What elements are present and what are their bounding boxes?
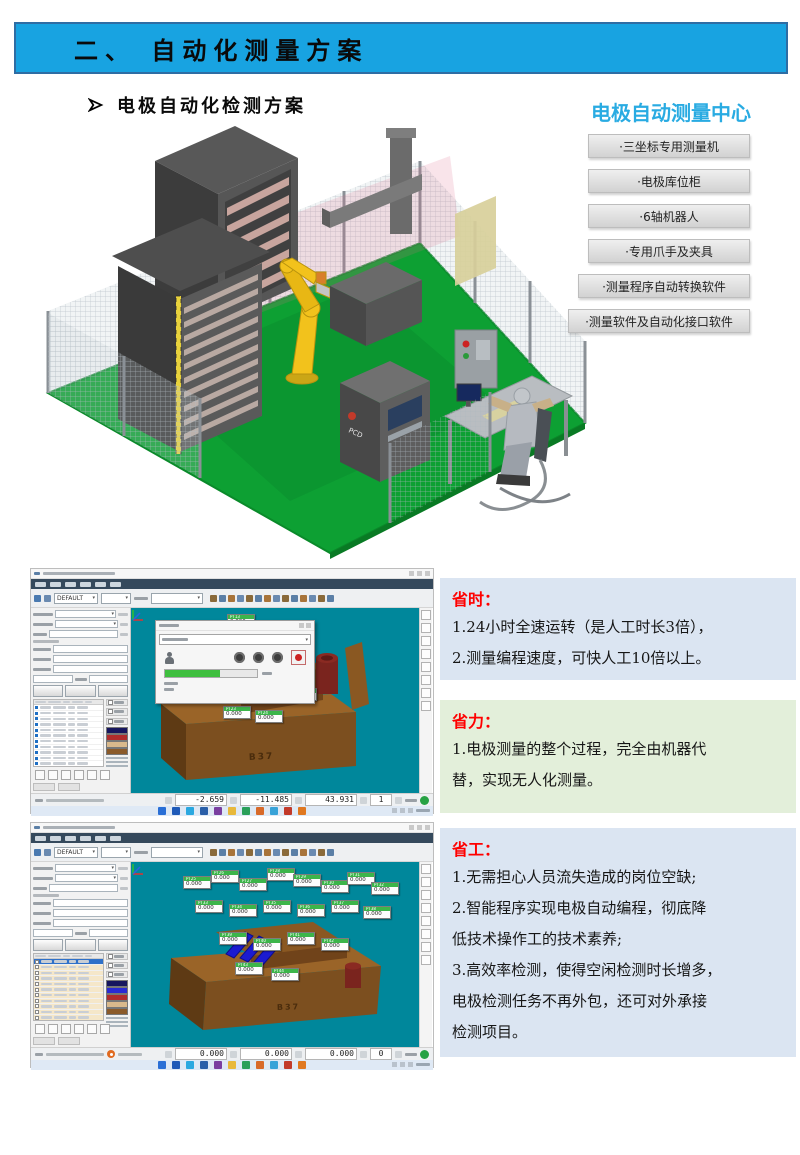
toolbar-icon[interactable]: [309, 595, 316, 602]
benefit-block-labor: 省力： 1.电极测量的整个过程，完全由机器代 替，实现无人化测量。: [440, 700, 796, 813]
toolbar-icon[interactable]: [291, 595, 298, 602]
dialog-program-select[interactable]: ▾: [159, 634, 311, 645]
window-controls[interactable]: [409, 571, 430, 576]
taskbar-app-icon[interactable]: [284, 807, 292, 815]
taskbar-app-icon[interactable]: [172, 807, 180, 815]
toolbar-icon[interactable]: [219, 595, 226, 602]
param-field[interactable]: [53, 655, 128, 663]
param-field[interactable]: [53, 899, 128, 907]
toolbar-icon[interactable]: [219, 849, 226, 856]
toolbar-icon[interactable]: [300, 849, 307, 856]
probe-icon: [360, 797, 367, 804]
panel-icon[interactable]: [100, 1024, 110, 1034]
toolbar-icon[interactable]: [318, 595, 325, 602]
menu-item[interactable]: [50, 836, 61, 841]
param-field[interactable]: [53, 665, 128, 673]
toolbar-icon[interactable]: [309, 849, 316, 856]
operator-icon: [164, 652, 174, 664]
search-field[interactable]: [33, 929, 73, 937]
toolbar-icon[interactable]: [273, 849, 280, 856]
taskbar-app-icon[interactable]: [200, 807, 208, 815]
point-label: PT380.000: [363, 906, 391, 919]
taskbar-app-icon[interactable]: [228, 1061, 236, 1069]
taskbar-app-icon[interactable]: [284, 1061, 292, 1069]
y-coordinate: 0.000: [240, 1048, 292, 1060]
system-tray: [392, 808, 430, 813]
3d-viewport[interactable]: B37 PT130.000PT140.000PT150.000PT160.000…: [131, 608, 419, 793]
point-label: PT250.000: [183, 876, 211, 889]
dialog-close-icon[interactable]: [306, 623, 311, 628]
mc-item-rack[interactable]: ·电极库位柜: [588, 169, 750, 193]
menu-item[interactable]: [80, 836, 91, 841]
legend-swatch: [106, 980, 128, 987]
panel-icon[interactable]: [61, 1024, 71, 1034]
menu-item[interactable]: [95, 836, 106, 841]
automation-cell-illustration: PCD: [30, 116, 590, 560]
axis-z-icon: [295, 797, 302, 804]
legend-swatch: [106, 741, 128, 748]
axis-triad-icon: [131, 862, 145, 876]
benefit-heading: 省工：: [452, 836, 784, 860]
alarm-bell-icon: [420, 796, 429, 805]
workspace-select[interactable]: ▾: [55, 610, 116, 618]
toolbar-icon[interactable]: [318, 849, 325, 856]
menu-item[interactable]: [110, 836, 121, 841]
panel-button[interactable]: [98, 685, 128, 697]
point-label: PT410.000: [287, 932, 315, 945]
point-label: PT440.000: [271, 968, 299, 981]
y-coordinate: -11.485: [240, 794, 292, 806]
option-toggle[interactable]: [106, 718, 128, 725]
tolerance-field[interactable]: [106, 761, 128, 763]
part-select[interactable]: ▾: [151, 593, 203, 604]
status-bar: -2.659 -11.485 43.931 1: [31, 793, 433, 806]
panel-icon[interactable]: [35, 770, 45, 780]
tolerance-field[interactable]: [106, 757, 128, 759]
menu-item[interactable]: [35, 836, 46, 841]
window-titlebar: [31, 823, 433, 833]
benefit-line: 替，实现无人化测量。: [452, 765, 784, 796]
record-button[interactable]: [291, 650, 306, 665]
legend-swatch: [106, 727, 128, 734]
view-tool-icon[interactable]: [421, 929, 431, 939]
cmm-software-screenshot-1: DEFAULT▾ ▾ ▾ ▾ ▾: [30, 568, 434, 814]
point-label: PT240.000: [255, 710, 283, 723]
panel-icon[interactable]: [35, 1024, 45, 1034]
legend-swatch: [106, 994, 128, 1001]
view-tool-icon[interactable]: [421, 942, 431, 952]
param-field[interactable]: [53, 909, 128, 917]
toolbar-icon[interactable]: [228, 595, 235, 602]
windows-taskbar: [31, 806, 433, 816]
section-heading: 电极自动化检测方案: [117, 92, 306, 118]
panel-tab[interactable]: [58, 783, 80, 791]
panel-icon[interactable]: [87, 1024, 97, 1034]
mc-item-gripper[interactable]: ·专用爪手及夹具: [588, 239, 750, 263]
panel-tab[interactable]: [33, 1037, 55, 1045]
point-label: PT420.000: [321, 938, 349, 951]
view-tool-icon[interactable]: [421, 610, 431, 620]
option-toggle[interactable]: [106, 699, 128, 706]
legend-swatch: [106, 1008, 128, 1015]
probe-select[interactable]: DEFAULT▾: [54, 847, 98, 858]
toolbar-icon[interactable]: [282, 849, 289, 856]
point-label: PT230.000: [223, 706, 251, 719]
taskbar-app-icon[interactable]: [228, 807, 236, 815]
display-options-column: [106, 953, 128, 1021]
point-label: PT300.000: [321, 880, 349, 893]
measure-run-dialog: ▾: [155, 620, 315, 704]
x-coordinate: -2.659: [175, 794, 227, 806]
toolbar-icon[interactable]: [237, 849, 244, 856]
menu-item[interactable]: [95, 582, 106, 587]
estop-button: [348, 412, 356, 420]
taskbar-app-icon[interactable]: [298, 1061, 306, 1069]
system-tray: [392, 1062, 430, 1067]
benefit-line: 1.无需担心人员流失造成的岗位空缺;: [452, 862, 784, 893]
fixture-select[interactable]: ▾: [55, 874, 118, 882]
pause-button[interactable]: [253, 652, 264, 663]
benefit-block-time: 省时： 1.24小时全速运转（是人工时长3倍）， 2.测量编程速度，可快人工10…: [440, 578, 796, 680]
toolbar-icon[interactable]: [264, 849, 271, 856]
benefit-heading: 省力：: [452, 708, 784, 732]
toolbar-icon[interactable]: [210, 849, 217, 856]
taskbar-app-icon[interactable]: [242, 807, 250, 815]
z-coordinate: 0.000: [305, 1048, 357, 1060]
panel-icon[interactable]: [74, 1024, 84, 1034]
axis-triad-icon: [131, 608, 145, 622]
status-bar: 0.000 0.000 0.000 0: [31, 1047, 433, 1060]
run-button[interactable]: [234, 652, 245, 663]
view-tool-strip: [419, 862, 432, 1047]
panel-icon[interactable]: [48, 770, 58, 780]
benefit-block-staff: 省工： 1.无需担心人员流失造成的岗位空缺; 2.智能程序实现电极自动编程，彻底…: [440, 828, 796, 1057]
panel-icon[interactable]: [74, 770, 84, 780]
notification-icon[interactable]: [107, 1050, 115, 1058]
stop-button[interactable]: [272, 652, 283, 663]
filter-field[interactable]: [89, 929, 129, 937]
panel-icon[interactable]: [61, 770, 71, 780]
probe-select[interactable]: DEFAULT▾: [54, 593, 98, 604]
taskbar-app-icon[interactable]: [242, 1061, 250, 1069]
toolbar-icon[interactable]: [255, 849, 262, 856]
measurement-center-title: 电极自动测量中心: [583, 97, 759, 126]
axis-x-icon: [165, 797, 172, 804]
point-count: 0: [370, 1048, 392, 1060]
toolbar-icon[interactable]: [264, 595, 271, 602]
view-tool-icon[interactable]: [421, 916, 431, 926]
arrow-bullet-icon: [88, 97, 104, 113]
point-label: PT320.000: [371, 882, 399, 895]
view-tool-icon[interactable]: [421, 877, 431, 887]
taskbar-app-icon[interactable]: [256, 1061, 264, 1069]
view-tool-icon[interactable]: [421, 864, 431, 874]
legend-swatch: [106, 734, 128, 741]
benefit-line: 1.24小时全速运转（是人工时长3倍），: [452, 612, 784, 643]
progress-bar: [164, 669, 258, 678]
toolbar: DEFAULT▾ ▾ ▾: [31, 843, 433, 862]
mc-item-interface-software[interactable]: ·测量软件及自动化接口软件: [568, 309, 750, 333]
view-tool-icon[interactable]: [421, 890, 431, 900]
panel-tab[interactable]: [33, 783, 55, 791]
benefit-line: 检测项目。: [452, 1017, 784, 1048]
point-label: PT260.000: [211, 870, 239, 883]
option-toggle[interactable]: [106, 971, 128, 978]
toolbar-icon[interactable]: [34, 595, 41, 602]
view-tool-icon[interactable]: [421, 688, 431, 698]
toolbar-icon[interactable]: [228, 849, 235, 856]
taskbar-app-icon[interactable]: [186, 807, 194, 815]
toolbar: DEFAULT▾ ▾ ▾: [31, 589, 433, 608]
taskbar-app-icon[interactable]: [158, 807, 166, 815]
windows-taskbar: [31, 1060, 433, 1070]
point-label: PT360.000: [297, 904, 325, 917]
toolbar-icon[interactable]: [44, 849, 51, 856]
cmm-software-screenshot-2: DEFAULT▾ ▾ ▾ ▾ ▾: [30, 822, 434, 1068]
table-row[interactable]: [34, 1015, 103, 1021]
toolbar-icon[interactable]: [255, 595, 262, 602]
axis-y-icon: [230, 797, 237, 804]
view-tool-icon[interactable]: [421, 623, 431, 633]
point-label: PT350.000: [263, 900, 291, 913]
panel-icon[interactable]: [87, 770, 97, 780]
panel-button[interactable]: [98, 939, 128, 951]
axis-z-icon: [295, 1051, 302, 1058]
mc-item-robot[interactable]: ·6轴机器人: [588, 204, 750, 228]
fixture-select[interactable]: ▾: [55, 620, 118, 628]
pendant-box: [455, 330, 497, 388]
toolbar-icon[interactable]: [246, 849, 253, 856]
window-controls[interactable]: [409, 825, 430, 830]
program-field[interactable]: [49, 884, 118, 892]
taskbar-app-icon[interactable]: [270, 1061, 278, 1069]
taskbar-app-icon[interactable]: [256, 807, 264, 815]
view-tool-icon[interactable]: [421, 955, 431, 965]
z-coordinate: 43.931: [305, 794, 357, 806]
benefit-line: 1.电极测量的整个过程，完全由机器代: [452, 734, 784, 765]
tolerance-field[interactable]: [106, 765, 128, 767]
filter-field[interactable]: [89, 675, 129, 683]
point-label: PT390.000: [219, 932, 247, 945]
mc-item-cmm[interactable]: ·三坐标专用测量机: [588, 134, 750, 158]
panel-button[interactable]: [65, 939, 95, 951]
slide-title-banner: 二、 自动化测量方案: [14, 22, 788, 74]
toolbar-icon[interactable]: [282, 595, 289, 602]
taskbar-app-icon[interactable]: [200, 1061, 208, 1069]
x-coordinate: 0.000: [175, 1048, 227, 1060]
menu-bar: [31, 579, 433, 589]
toolbar-icon[interactable]: [246, 595, 253, 602]
panel-tab[interactable]: [58, 1037, 80, 1045]
legend-swatch: [106, 1001, 128, 1008]
point-label: PT280.000: [267, 868, 295, 881]
point-label: PT400.000: [253, 938, 281, 951]
benefit-line: 2.智能程序实现电极自动编程，彻底降: [452, 893, 784, 924]
part-select[interactable]: ▾: [151, 847, 203, 858]
option-toggle[interactable]: [106, 708, 128, 715]
taskbar-app-icon[interactable]: [158, 1061, 166, 1069]
point-label: PT430.000: [235, 962, 263, 975]
point-label: PT290.000: [293, 874, 321, 887]
search-field[interactable]: [33, 675, 73, 683]
taskbar-app-icon[interactable]: [214, 807, 222, 815]
left-parameter-panel: ▾ ▾: [31, 608, 131, 793]
3d-viewport[interactable]: B37 PT250.000PT260.000PT270.000PT280.000…: [131, 862, 419, 1047]
slide-title: 二、 自动化测量方案: [74, 31, 368, 66]
taskbar-app-icon[interactable]: [172, 1061, 180, 1069]
taskbar-app-icon[interactable]: [186, 1061, 194, 1069]
view-tool-icon[interactable]: [421, 903, 431, 913]
param-field[interactable]: [53, 919, 128, 927]
workspace-select[interactable]: ▾: [55, 864, 116, 872]
panel-button[interactable]: [65, 685, 95, 697]
measure-point-table: [33, 953, 104, 1021]
point-label: PT340.000: [229, 904, 257, 917]
axis-x-icon: [165, 1051, 172, 1058]
param-field[interactable]: [53, 645, 128, 653]
menu-item[interactable]: [65, 582, 76, 587]
view-tool-strip: [419, 608, 432, 793]
taskbar-app-icon[interactable]: [298, 807, 306, 815]
benefit-line: 低技术操作工的技术素养;: [452, 924, 784, 955]
panel-icon[interactable]: [100, 770, 110, 780]
benefit-heading: 省时：: [452, 586, 784, 610]
view-tool-icon[interactable]: [421, 662, 431, 672]
tolerance-field[interactable]: [106, 1017, 128, 1019]
tip-select[interactable]: ▾: [101, 847, 131, 858]
toolbar-icon[interactable]: [34, 849, 41, 856]
slide-page: { "slide": { "banner_title": "二、 自动化测量方案…: [0, 0, 800, 1155]
menu-item[interactable]: [110, 582, 121, 587]
view-tool-icon[interactable]: [421, 675, 431, 685]
left-parameter-panel: ▾ ▾: [31, 862, 131, 1047]
panel-button[interactable]: [33, 685, 63, 697]
toolbar-icon[interactable]: [327, 849, 334, 856]
panel-icon-row: [33, 769, 128, 781]
toolbar-icon[interactable]: [273, 595, 280, 602]
toolbar-icon[interactable]: [44, 595, 51, 602]
measure-point-table: [33, 699, 104, 767]
panel-icon[interactable]: [48, 1024, 58, 1034]
legend-swatch: [106, 987, 128, 994]
toolbar-icon[interactable]: [291, 849, 298, 856]
tip-select[interactable]: ▾: [101, 593, 131, 604]
alarm-bell-icon: [420, 1050, 429, 1059]
probe-icon: [360, 1051, 367, 1058]
toolbar-icon[interactable]: [327, 595, 334, 602]
menu-bar: [31, 833, 433, 843]
panel-button[interactable]: [33, 939, 63, 951]
menu-item[interactable]: [50, 582, 61, 587]
table-row[interactable]: [34, 761, 103, 767]
view-tool-icon[interactable]: [421, 636, 431, 646]
point-label: PT330.000: [195, 900, 223, 913]
menu-item[interactable]: [65, 836, 76, 841]
view-tool-icon[interactable]: [421, 701, 431, 711]
window-titlebar: [31, 569, 433, 579]
benefit-line: 电极检测任务不再外包，还可对外承接: [452, 986, 784, 1017]
option-toggle[interactable]: [106, 953, 128, 960]
legend-swatch: [106, 748, 128, 755]
benefit-line: 2.测量编程速度，可快人工10倍以上。: [452, 643, 784, 674]
view-tool-icon[interactable]: [421, 649, 431, 659]
toolbar-icon[interactable]: [237, 595, 244, 602]
dialog-minimize[interactable]: [299, 623, 304, 628]
program-field[interactable]: [49, 630, 118, 638]
mc-item-program-software[interactable]: ·测量程序自动转换软件: [578, 274, 750, 298]
taskbar-app-icon[interactable]: [214, 1061, 222, 1069]
toolbar-icon[interactable]: [300, 595, 307, 602]
display-options-column: [106, 699, 128, 767]
benefit-line: 3.高效率检测，使得空闲检测时长增多，: [452, 955, 784, 986]
taskbar-app-icon[interactable]: [270, 807, 278, 815]
option-toggle[interactable]: [106, 962, 128, 969]
menu-item[interactable]: [80, 582, 91, 587]
axis-y-icon: [230, 1051, 237, 1058]
section-heading-row: 电极自动化检测方案: [88, 92, 306, 118]
point-count: 1: [370, 794, 392, 806]
status-icon: [395, 1051, 402, 1058]
panel-icon-row: [33, 1023, 128, 1035]
menu-item[interactable]: [35, 582, 46, 587]
status-icon: [395, 797, 402, 804]
point-label: PT370.000: [331, 900, 359, 913]
toolbar-icon[interactable]: [210, 595, 217, 602]
point-label: PT270.000: [239, 878, 267, 891]
